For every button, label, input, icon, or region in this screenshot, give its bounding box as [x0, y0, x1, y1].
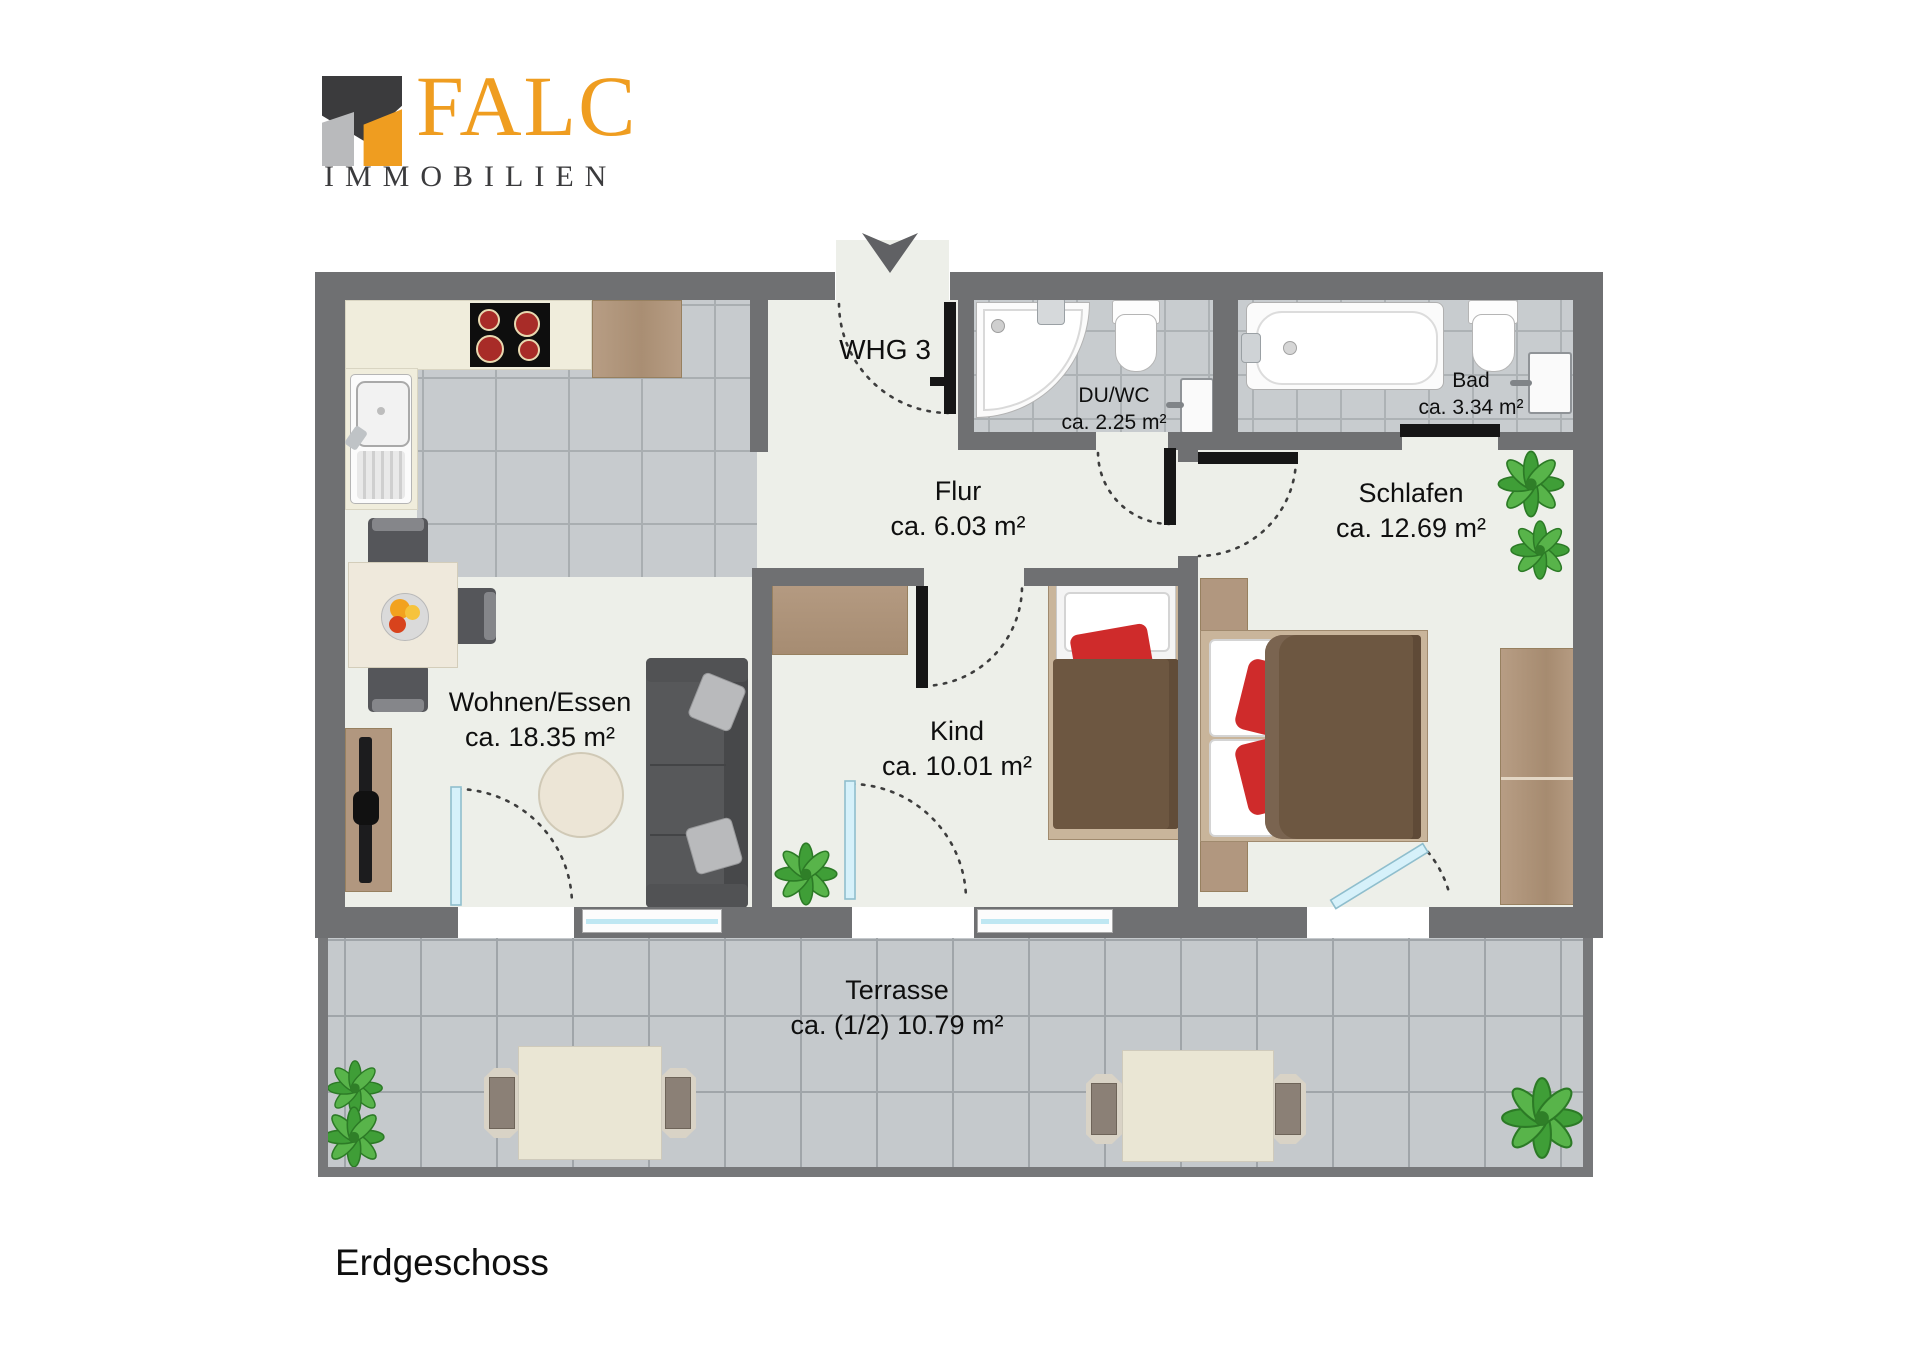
room-label-wohnen: Wohnen/Essen ca. 18.35 m² — [449, 685, 632, 754]
entry-door-handle — [930, 377, 946, 386]
room-label-kind: Kind ca. 10.01 m² — [882, 714, 1032, 783]
room-area: ca. 10.01 m² — [882, 749, 1032, 784]
floor-label: Erdgeschoss — [335, 1242, 549, 1284]
room-label-flur: Flur ca. 6.03 m² — [890, 474, 1025, 543]
kind-door-leaf — [916, 586, 928, 688]
room-area: ca. 18.35 m² — [449, 720, 632, 755]
room-label-bad: Bad ca. 3.34 m² — [1418, 368, 1523, 422]
floorplan-page: { "logo": { "brand": "FALC", "subtitle":… — [0, 0, 1920, 1357]
room-label-schlafen: Schlafen ca. 12.69 m² — [1336, 476, 1486, 545]
room-name: Terrasse — [790, 973, 1003, 1008]
room-name: Schlafen — [1336, 476, 1486, 511]
kind-door-arc — [924, 588, 1022, 686]
room-area: ca. 3.34 m² — [1418, 395, 1523, 422]
room-name: Kind — [882, 714, 1032, 749]
doors-and-arcs — [0, 0, 1920, 1357]
room-name: Wohnen/Essen — [449, 685, 632, 720]
kind-terrace-door-leaf — [845, 781, 855, 899]
schlafen-terrace-door-leaf — [1331, 844, 1428, 909]
duwc-door-arc — [1098, 453, 1169, 524]
kind-terrace-door-arc — [852, 784, 966, 899]
room-name: Flur — [890, 474, 1025, 509]
duwc-door-leaf — [1164, 448, 1176, 525]
room-area: ca. (1/2) 10.79 m² — [790, 1008, 1003, 1043]
room-name: Bad — [1418, 368, 1523, 395]
room-name: DU/WC — [1061, 383, 1166, 410]
unit-label: WHG 3 — [839, 334, 931, 366]
schlafen-door-arc — [1199, 460, 1296, 556]
room-area: ca. 12.69 m² — [1336, 511, 1486, 546]
room-label-duwc: DU/WC ca. 2.25 m² — [1061, 383, 1166, 437]
bad-sliding-door — [1400, 424, 1500, 437]
living-terrace-door-arc — [458, 789, 572, 904]
schlafen-terrace-door-arc — [1428, 852, 1450, 896]
room-area: ca. 6.03 m² — [890, 509, 1025, 544]
room-label-terrasse: Terrasse ca. (1/2) 10.79 m² — [790, 973, 1003, 1042]
entry-door-leaf — [944, 302, 956, 414]
living-terrace-door-leaf — [451, 787, 461, 905]
schlafen-door-leaf — [1198, 452, 1298, 464]
room-area: ca. 2.25 m² — [1061, 410, 1166, 437]
